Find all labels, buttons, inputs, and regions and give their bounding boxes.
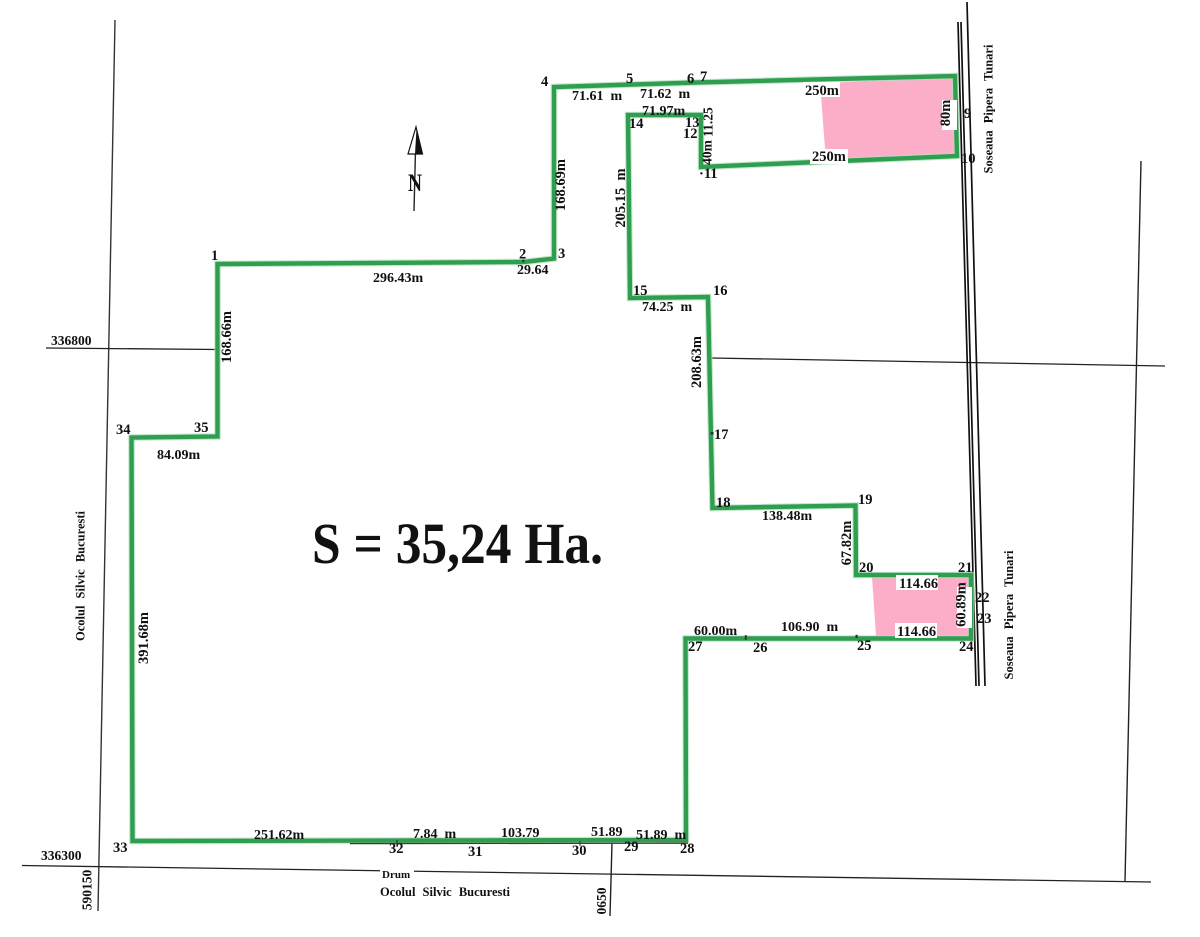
- svg-text:28: 28: [680, 841, 695, 857]
- svg-text:20: 20: [859, 560, 874, 576]
- svg-text:51.89: 51.89: [591, 825, 623, 840]
- svg-text:3: 3: [558, 246, 565, 262]
- svg-text:114.66: 114.66: [899, 576, 938, 592]
- svg-text:Ocolul Silvic Bucuresti: Ocolul Silvic Bucuresti: [74, 510, 88, 641]
- svg-text:60.00m: 60.00m: [694, 624, 738, 639]
- svg-text:Soseaua Pipera Tunari: Soseaua Pipera Tunari: [982, 44, 996, 173]
- svg-text:6: 6: [687, 71, 694, 87]
- svg-text:84.09m: 84.09m: [157, 448, 201, 463]
- svg-text:0650: 0650: [594, 887, 609, 914]
- svg-text:5: 5: [626, 71, 633, 87]
- svg-text:7: 7: [700, 69, 707, 85]
- svg-text:N: N: [408, 170, 422, 197]
- svg-text:Soseaua Pipera Tunari: Soseaua Pipera Tunari: [1002, 550, 1016, 679]
- svg-text:24: 24: [959, 639, 974, 655]
- svg-text:250m: 250m: [805, 83, 839, 99]
- svg-text:51.89 m: 51.89 m: [636, 828, 687, 843]
- svg-text:13: 13: [685, 115, 700, 131]
- svg-text:71.61 m: 71.61 m: [572, 89, 623, 104]
- svg-text:11.25: 11.25: [701, 107, 716, 137]
- svg-text:26: 26: [753, 640, 768, 656]
- svg-text:336300: 336300: [41, 848, 82, 863]
- svg-text:80m: 80m: [938, 100, 954, 127]
- svg-text:168.69m: 168.69m: [553, 159, 569, 211]
- svg-text:60.89m: 60.89m: [954, 582, 970, 627]
- svg-text:251.62m: 251.62m: [254, 828, 305, 843]
- svg-text:114.66: 114.66: [897, 624, 936, 640]
- svg-text:10: 10: [961, 151, 976, 167]
- svg-text:205.15 m: 205.15 m: [613, 168, 629, 227]
- svg-text:18: 18: [716, 495, 731, 511]
- svg-text:16: 16: [713, 283, 728, 299]
- svg-text:S = 35,24 Ha.: S = 35,24 Ha.: [312, 511, 603, 576]
- svg-text:74.25 m: 74.25 m: [642, 300, 693, 315]
- svg-text:106.90 m: 106.90 m: [781, 620, 839, 635]
- svg-text:336800: 336800: [51, 333, 92, 348]
- svg-text:208.63m: 208.63m: [689, 336, 705, 388]
- svg-text:7.84 m: 7.84 m: [413, 827, 457, 842]
- svg-text:40m: 40m: [700, 139, 715, 165]
- svg-text:32: 32: [389, 841, 404, 857]
- svg-text:Drum: Drum: [382, 869, 410, 881]
- svg-text:23: 23: [977, 611, 992, 627]
- svg-text:103.79: 103.79: [501, 826, 540, 841]
- svg-text:31: 31: [468, 844, 483, 860]
- svg-text:2: 2: [519, 247, 526, 263]
- svg-text:30: 30: [572, 843, 587, 859]
- svg-text:33: 33: [113, 840, 128, 856]
- svg-text:4: 4: [541, 74, 548, 90]
- svg-text:21: 21: [958, 560, 973, 576]
- svg-text:9: 9: [964, 106, 971, 122]
- svg-text:71.62 m: 71.62 m: [640, 87, 691, 102]
- svg-text:17: 17: [714, 427, 729, 443]
- svg-text:71.97m: 71.97m: [642, 104, 686, 119]
- svg-text:34: 34: [116, 422, 131, 438]
- svg-text:35: 35: [194, 420, 209, 436]
- svg-text:67.82m: 67.82m: [839, 521, 855, 566]
- svg-text:15: 15: [633, 283, 648, 299]
- svg-text:22: 22: [975, 590, 990, 606]
- svg-text:27: 27: [688, 639, 703, 655]
- svg-text:391.68m: 391.68m: [136, 612, 152, 664]
- svg-text:250m: 250m: [812, 149, 846, 165]
- svg-text:·11: ·11: [699, 166, 718, 182]
- svg-text:296.43m: 296.43m: [373, 271, 424, 286]
- svg-text:Ocolul Silvic Bucuresti: Ocolul Silvic Bucuresti: [380, 885, 511, 899]
- svg-text:25: 25: [857, 638, 872, 654]
- svg-text:590150: 590150: [80, 870, 95, 911]
- svg-text:29.64: 29.64: [517, 263, 549, 278]
- svg-text:138.48m: 138.48m: [762, 509, 813, 524]
- svg-text:1: 1: [211, 248, 218, 264]
- svg-text:19: 19: [858, 492, 873, 508]
- svg-text:168.66m: 168.66m: [219, 311, 235, 363]
